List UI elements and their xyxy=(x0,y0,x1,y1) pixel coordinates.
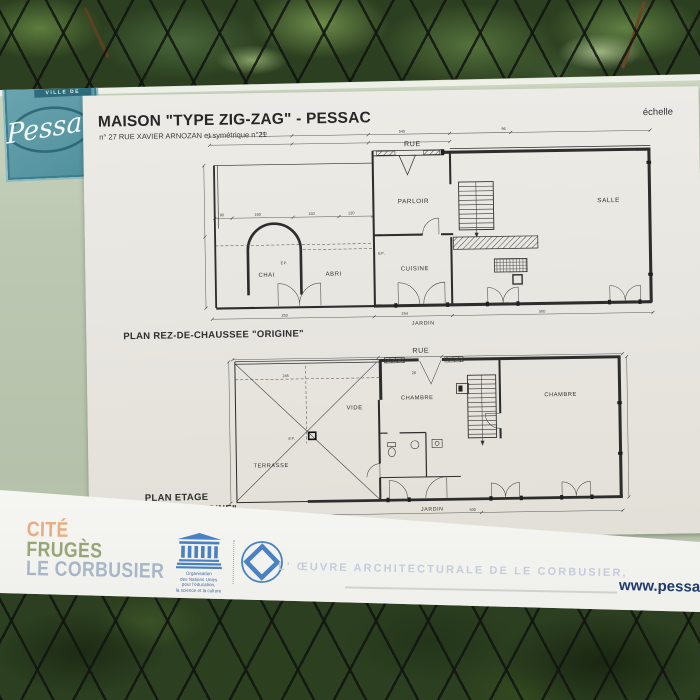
dim-label: 254 xyxy=(402,312,409,316)
staircase xyxy=(459,182,494,239)
room-label-cuisine: CUISINE xyxy=(401,266,429,272)
door-swings xyxy=(277,215,641,306)
dotted-divider xyxy=(233,540,235,584)
dim-label: 510 xyxy=(260,132,267,136)
dim-label: 96 xyxy=(501,127,505,131)
dim-label: 26 xyxy=(412,371,416,375)
room-label-ep: EP. xyxy=(289,437,296,441)
walls xyxy=(214,145,653,309)
staircase xyxy=(467,375,496,446)
unesco-caption-line: la science et la culture xyxy=(165,587,231,594)
dim-label: 253 xyxy=(281,314,288,318)
dim-label: 160 xyxy=(254,213,261,217)
room-label-ep: EP. xyxy=(281,261,288,265)
dim-label: 90 xyxy=(220,213,224,217)
ground-floor-plan: 510 545 96 90 160 150 120 253 254 500 xyxy=(195,120,656,346)
dim-label: 500 xyxy=(469,508,475,512)
dim-label: 150 xyxy=(308,212,315,216)
room-label-rue: RUE xyxy=(404,140,421,148)
room-label-chambre: CHAMBRE xyxy=(544,392,577,399)
room-label-rue: RUE xyxy=(412,348,429,355)
site-title-line3: LE CORBUSIER xyxy=(26,559,165,581)
dim-label: 545 xyxy=(399,130,406,134)
dim-label: 500 xyxy=(539,310,546,314)
window-jambs xyxy=(385,401,623,502)
door-swings xyxy=(365,358,590,499)
information-sign-panel: VILLE DE Pessac MAISON "TYPE ZIG-ZAG" - … xyxy=(0,74,700,614)
room-label-chambre: CHAMBRE xyxy=(401,395,434,402)
footer-rule-line xyxy=(345,586,617,593)
room-label-parloir: PARLOIR xyxy=(398,198,430,205)
scale-label: échelle xyxy=(643,107,673,118)
unesco-logo-block: Organisation des Nations Unies pour l'éd… xyxy=(165,531,232,594)
plan-sheet: MAISON "TYPE ZIG-ZAG" - PESSAC n° 27 RUE… xyxy=(83,86,700,543)
kitchen-details xyxy=(453,236,538,285)
room-label-jardin: JARDIN xyxy=(412,320,435,326)
photo-scene: VILLE DE Pessac MAISON "TYPE ZIG-ZAG" - … xyxy=(0,0,700,700)
unesco-temple-icon xyxy=(176,532,223,570)
room-label-terrasse: TERRASSE xyxy=(254,463,289,470)
heritage-inscription-text: L' ŒUVRE ARCHITECTURALE DE LE CORBUSIER, xyxy=(278,561,623,580)
terrace-diagonals xyxy=(235,362,380,502)
upper-floor-plan: 245 26 500 xyxy=(226,340,633,528)
room-label-jardin: JARDIN xyxy=(421,507,444,513)
room-label-vide: VIDE xyxy=(347,405,363,411)
walls xyxy=(235,354,623,503)
room-label-ep: EP. xyxy=(378,251,385,255)
unesco-caption: Organisation des Nations Unies pour l'éd… xyxy=(165,570,231,594)
room-label-abri: ABRI xyxy=(326,272,342,278)
dim-label: 120 xyxy=(348,211,355,215)
site-title: CITÉ FRUGÈS LE CORBUSIER xyxy=(26,520,166,581)
dashed-guides xyxy=(215,243,374,251)
dim-label: 245 xyxy=(282,374,288,378)
website-url: www.pessac. xyxy=(619,577,700,596)
room-label-salle: SALLE xyxy=(597,197,620,204)
room-label-chai: CHAI xyxy=(258,273,275,279)
